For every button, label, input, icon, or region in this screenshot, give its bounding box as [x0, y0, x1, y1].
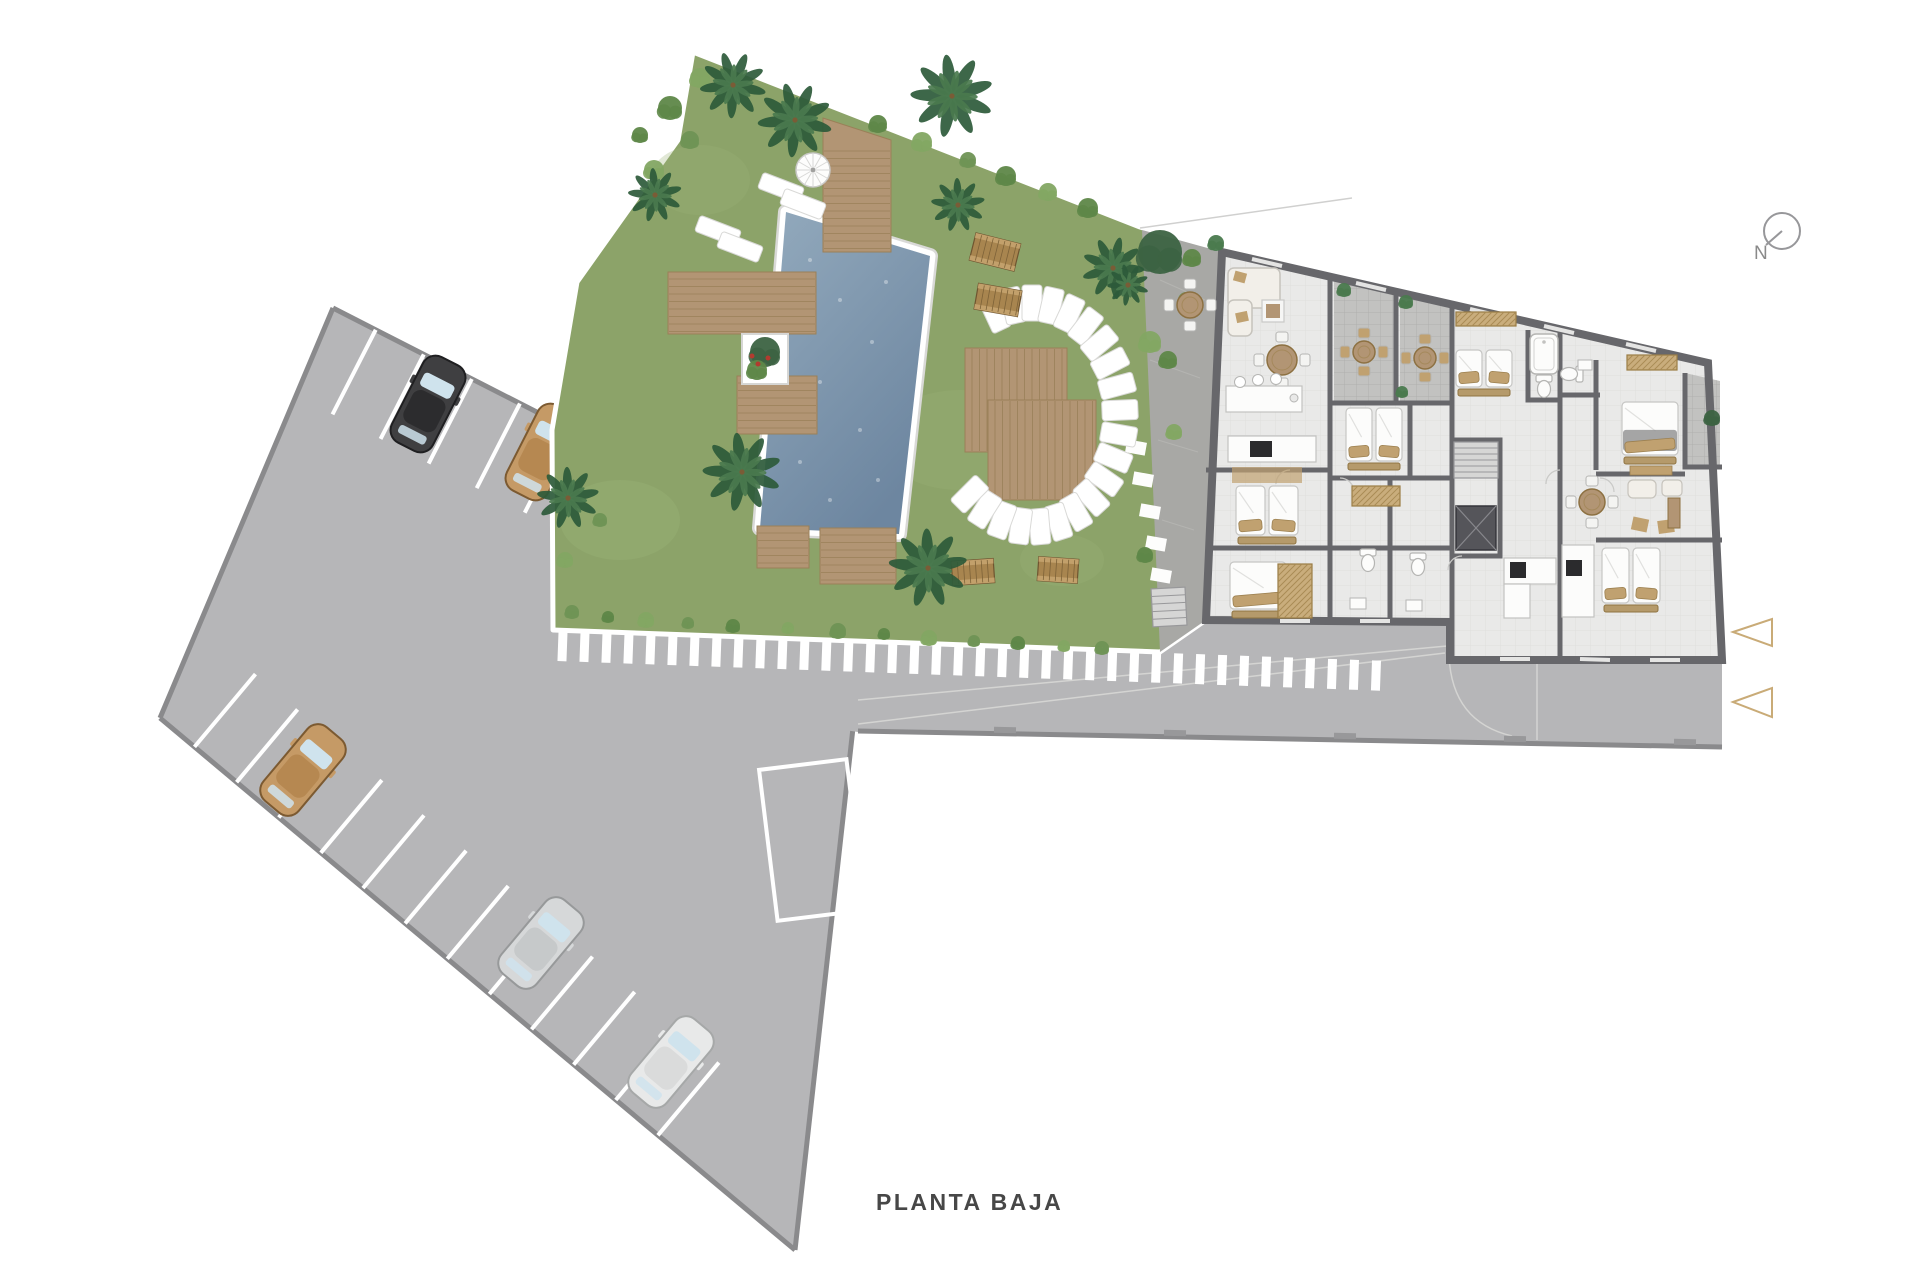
bush: [1167, 358, 1177, 368]
chair: [1378, 346, 1388, 358]
bed-pillow: [1605, 587, 1627, 600]
bush: [1017, 642, 1025, 650]
chair: [1300, 354, 1310, 366]
planter-plant: [756, 368, 767, 379]
bath-sink: [1578, 360, 1592, 370]
bush: [1173, 430, 1182, 439]
indoor-plant: [1343, 289, 1351, 297]
bush: [657, 96, 682, 120]
chair: [1401, 352, 1411, 364]
double-bed: [1622, 402, 1678, 464]
curb-tick: [1334, 733, 1356, 739]
kitchen-counter: [1562, 545, 1594, 617]
bar-stool: [1253, 375, 1264, 386]
kitchen-sink: [1290, 394, 1298, 402]
chair: [1566, 496, 1576, 508]
pool-ripples: [870, 340, 874, 344]
chair: [1184, 321, 1196, 331]
bed-pillow: [1349, 445, 1370, 458]
entrance-arrow: [1733, 619, 1772, 646]
kitchen-runner: [1232, 467, 1302, 483]
toilet: [1536, 375, 1552, 398]
chair: [1184, 279, 1196, 289]
wardrobe: [1278, 564, 1312, 618]
chair: [1419, 372, 1431, 382]
bush: [883, 633, 890, 640]
entry-plant: [1215, 241, 1224, 250]
chair: [1358, 328, 1370, 338]
parasol-pole: [811, 168, 816, 173]
bush: [571, 611, 579, 619]
curb-tick: [1504, 736, 1526, 742]
bush: [921, 140, 932, 151]
sofa: [1628, 480, 1656, 498]
bed-headboard: [1624, 457, 1676, 464]
chair: [1184, 279, 1196, 289]
chair: [1586, 476, 1598, 486]
cooktop: [1510, 562, 1526, 578]
armchair: [1662, 480, 1682, 496]
palm-trunk: [565, 495, 570, 500]
bush: [1144, 553, 1153, 562]
bed-pillow: [1636, 587, 1658, 600]
bush: [967, 158, 976, 167]
picnic-bench: [1037, 557, 1079, 584]
palm-trunk: [1125, 282, 1130, 287]
bush: [645, 618, 654, 627]
bush: [687, 622, 694, 629]
sun-lounger: [1101, 399, 1138, 421]
floor-plan-svg: [0, 0, 1920, 1280]
bush: [973, 640, 980, 647]
chair: [1206, 299, 1216, 311]
bed-headboard: [1458, 389, 1510, 396]
chair: [1206, 299, 1216, 311]
bush: [877, 122, 887, 132]
chair: [1254, 354, 1264, 366]
pool-ripples: [858, 428, 862, 432]
curb-tick: [1674, 739, 1696, 745]
bush: [928, 636, 937, 645]
table-top: [1414, 347, 1436, 369]
chair: [1419, 334, 1431, 344]
balcony-plant: [1711, 416, 1720, 425]
palm-trunk: [739, 469, 744, 474]
chair: [1340, 346, 1350, 358]
bath-sink: [1350, 598, 1366, 609]
bed-headboard: [1348, 463, 1400, 470]
chair: [1586, 518, 1598, 528]
bush: [868, 115, 887, 133]
building-stairs: [1454, 442, 1498, 478]
curb-tick: [994, 727, 1016, 733]
chair: [1164, 299, 1174, 311]
bush: [1087, 206, 1098, 217]
chair: [1439, 352, 1449, 364]
pool-ripples: [808, 258, 812, 262]
chair: [1184, 321, 1196, 331]
bar-stool: [1271, 374, 1282, 385]
chair: [1586, 476, 1598, 486]
chair: [1566, 496, 1576, 508]
bush: [1005, 174, 1016, 185]
compass-needle: [1766, 231, 1782, 245]
bed-headboard: [1232, 611, 1284, 618]
toilet: [1362, 555, 1375, 572]
bush: [911, 132, 932, 152]
bush: [1063, 645, 1070, 652]
chair: [1276, 332, 1288, 342]
bush: [639, 133, 648, 142]
palm-trunk: [955, 202, 960, 207]
curb-tick: [1164, 730, 1186, 736]
chair: [1608, 496, 1618, 508]
pool-ripples: [884, 280, 888, 284]
pool-ripples: [838, 298, 842, 302]
chair: [1358, 328, 1370, 338]
toilet: [1412, 559, 1425, 576]
pool-deck: [820, 528, 896, 584]
curb-tick: [1674, 739, 1696, 745]
site-plan: PLANTA BAJA N: [0, 0, 1920, 1280]
palm-trunk: [730, 82, 735, 87]
entrance-arrow: [1733, 688, 1772, 717]
bush: [689, 138, 699, 148]
chair: [1586, 518, 1598, 528]
pool-deck: [668, 272, 816, 334]
chair: [1608, 496, 1618, 508]
pool-deck: [757, 526, 809, 568]
bed-pillow: [1272, 519, 1296, 532]
bath-sink: [1406, 600, 1422, 611]
window-marks: [1580, 659, 1610, 660]
bar-stool: [1235, 377, 1246, 388]
palm-trunk: [652, 192, 657, 197]
chair: [1340, 346, 1350, 358]
chair: [1378, 346, 1388, 358]
palm-trunk: [1110, 265, 1115, 270]
bush: [669, 106, 682, 119]
bush: [732, 625, 740, 633]
toilet: [1561, 368, 1578, 381]
bed-pillow: [1379, 445, 1400, 458]
indoor-plant: [1401, 391, 1408, 398]
chair: [1358, 366, 1370, 376]
indoor-plant: [1405, 301, 1413, 309]
bush: [1047, 190, 1057, 200]
curb-tick: [1334, 733, 1356, 739]
table-top: [1177, 292, 1203, 318]
bush: [1101, 647, 1109, 655]
chair: [1300, 354, 1310, 366]
compass-label: N: [1754, 243, 1768, 265]
cooktop: [1250, 441, 1272, 457]
parasol: [796, 153, 830, 187]
pool-deck: [823, 118, 891, 252]
planter-flowers: [766, 356, 771, 361]
bed-pillow: [1489, 371, 1510, 384]
bush: [631, 127, 648, 143]
bed-pillow: [1239, 519, 1263, 532]
bed-headboard: [1238, 537, 1296, 544]
table-top: [1353, 341, 1375, 363]
palm-tree: [910, 54, 993, 138]
tub-drain: [1542, 340, 1546, 344]
bush: [564, 558, 573, 567]
entry-plant: [1207, 235, 1224, 251]
chair: [1358, 366, 1370, 376]
bed-headboard: [1604, 605, 1658, 612]
bush: [1191, 256, 1201, 266]
curb-tick: [1504, 736, 1526, 742]
kitchen-counter: [1504, 584, 1530, 618]
table-top: [1579, 489, 1605, 515]
toilet: [1360, 549, 1376, 572]
pool-ripples: [876, 478, 880, 482]
tv-bench: [1668, 498, 1680, 528]
toilet: [1538, 381, 1551, 398]
pool-ripples: [828, 498, 832, 502]
sun-lounger: [1101, 399, 1138, 421]
cooktop: [1566, 560, 1582, 576]
curb-tick: [1164, 730, 1186, 736]
bed-pillow: [1459, 371, 1480, 384]
chair: [1254, 354, 1264, 366]
curb-tick: [994, 727, 1016, 733]
toilet: [1410, 553, 1426, 576]
pool-ripples: [818, 380, 822, 384]
bush: [837, 629, 846, 638]
bush: [787, 627, 794, 634]
palm-trunk: [925, 565, 930, 570]
garden-stairs: [1151, 587, 1187, 627]
plan-caption: PLANTA BAJA: [876, 1189, 1063, 1216]
palm-trunk: [949, 93, 954, 98]
bush: [1158, 248, 1182, 272]
bush: [1149, 340, 1161, 352]
garden-stairs: [1151, 587, 1187, 627]
palm-trunk: [792, 117, 797, 122]
site-boundary-line: [1140, 198, 1352, 228]
coffee-table: [1266, 304, 1280, 318]
chair: [1276, 332, 1288, 342]
wardrobe: [1627, 355, 1677, 370]
chair: [1419, 334, 1431, 344]
bush: [959, 152, 976, 168]
chair: [1439, 352, 1449, 364]
chair: [1164, 299, 1174, 311]
pool-ripples: [798, 460, 802, 464]
bush: [607, 616, 614, 623]
planter-flowers: [750, 354, 755, 359]
chair: [1401, 352, 1411, 364]
bush: [599, 519, 607, 527]
planter-flowers: [756, 362, 761, 367]
bed-bench: [1630, 466, 1672, 475]
chair: [1419, 372, 1431, 382]
